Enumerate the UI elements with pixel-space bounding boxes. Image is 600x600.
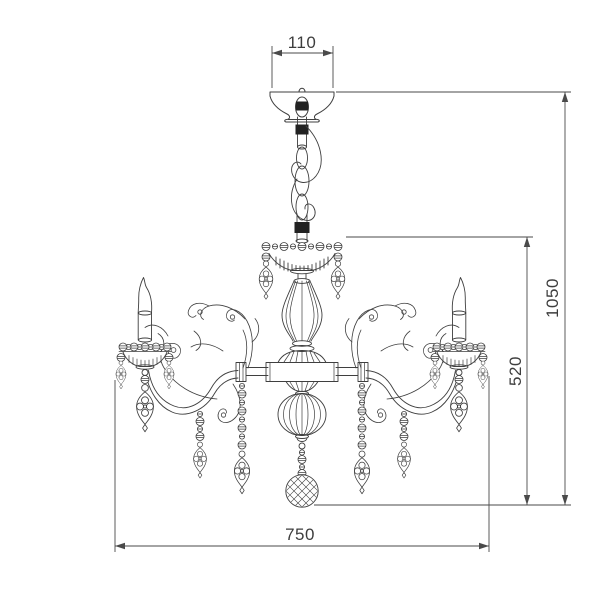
dimension-canopy-width: 110 xyxy=(272,33,333,88)
right-arm-assembly xyxy=(336,278,488,494)
dimension-lines: 110 750 520 1050 xyxy=(115,33,571,552)
dim-label-750: 750 xyxy=(285,525,315,544)
ceiling-canopy xyxy=(270,88,334,122)
left-arm-assembly xyxy=(116,278,268,494)
center-stack xyxy=(254,88,345,507)
drawing-canvas: 110 750 520 1050 xyxy=(0,0,600,600)
center-column xyxy=(282,274,322,352)
dim-label-1050: 1050 xyxy=(543,278,562,318)
chandelier-technical-drawing: 110 750 520 1050 xyxy=(0,0,600,600)
dimension-body-height: 520 xyxy=(506,237,530,505)
bottom-finial-ball xyxy=(254,450,334,507)
suspension-chain xyxy=(291,117,321,243)
bead-chain-mid xyxy=(398,411,411,478)
dim-label-110: 110 xyxy=(288,33,317,52)
bead-chain-inner xyxy=(354,383,369,493)
dim-label-520: 520 xyxy=(506,356,525,386)
dimension-overall-height: 1050 xyxy=(543,92,568,505)
center-hub xyxy=(266,351,338,450)
candle-sleeve-tip xyxy=(452,278,466,314)
